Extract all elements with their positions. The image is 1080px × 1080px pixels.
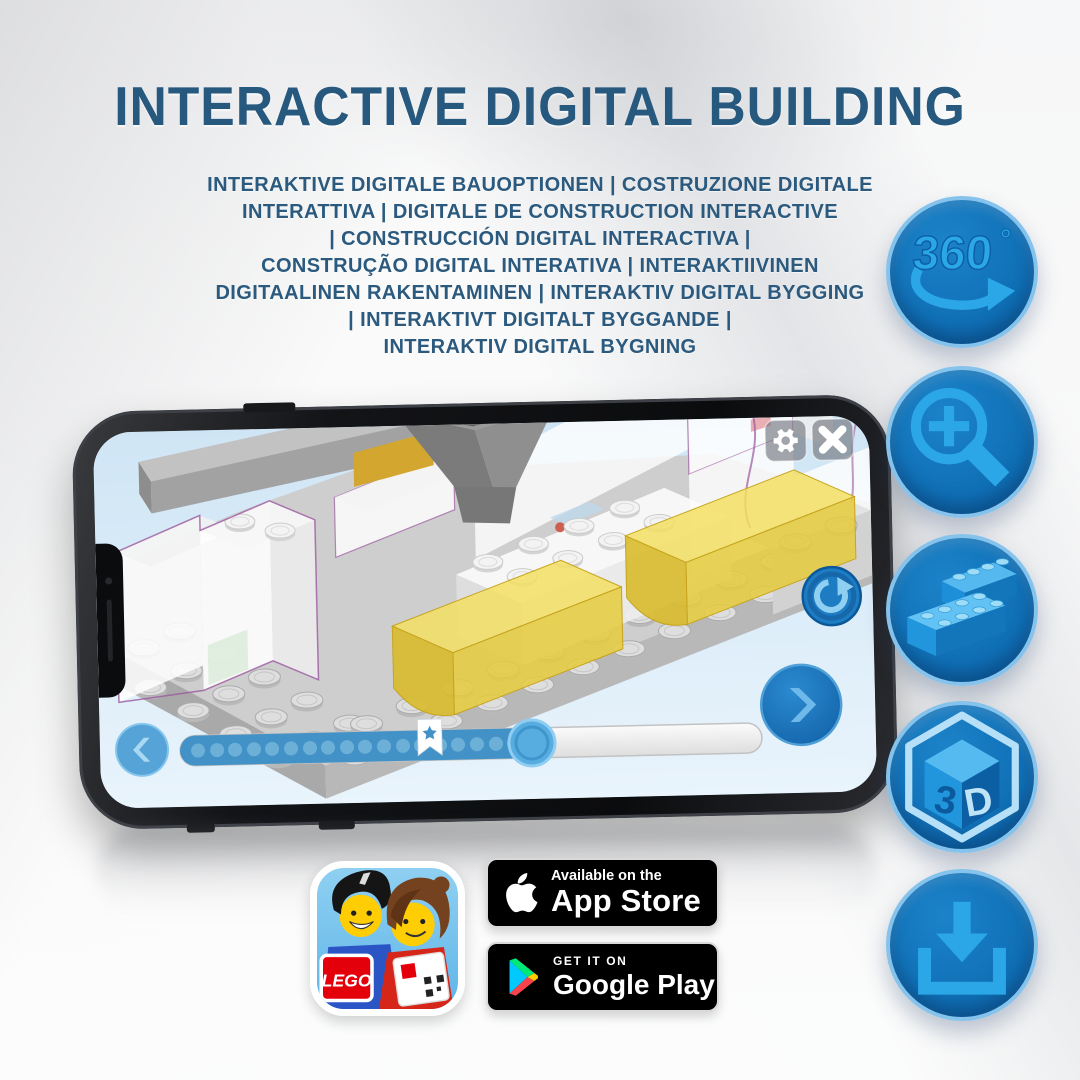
page-title: INTERACTIVE DIGITAL BUILDING (32, 74, 1047, 138)
lego-logo: LEGO (321, 955, 372, 1000)
next-step-button[interactable] (760, 664, 842, 746)
subtitle-line: INTERAKTIV DIGITAL BYGNING (160, 334, 920, 361)
subtitle-line: | CONSTRUCCIÓN DIGITAL INTERACTIVA | (160, 226, 920, 253)
degree-label: ° (998, 224, 1012, 256)
lego-logo-text: LEGO (322, 970, 372, 990)
multilingual-subtitle: INTERAKTIVE DIGITALE BAUOPTIONEN | COSTR… (160, 172, 920, 361)
feature-bricks (886, 534, 1038, 686)
download-icon (890, 873, 1034, 1017)
progress-handle[interactable] (508, 719, 555, 766)
lego-app-artwork: LEGO (317, 868, 458, 1009)
app-store-badge[interactable]: Available on the App Store (486, 858, 719, 928)
google-play-icon (504, 957, 540, 997)
subtitle-line: INTERATTIVA | DIGITALE DE CONSTRUCTION I… (160, 199, 920, 226)
feature-download (886, 869, 1038, 1021)
360-label: 360 (911, 227, 994, 280)
subtitle-line: | INTERAKTIVT DIGITALT BYGGANDE | (160, 307, 920, 334)
app-store-tagline: Available on the (551, 869, 701, 884)
rotate-button[interactable] (802, 566, 861, 625)
app-screen (93, 415, 877, 809)
phone-side-button (243, 402, 295, 412)
speaker-icon (107, 599, 113, 661)
subtitle-line: INTERAKTIVE DIGITALE BAUOPTIONEN | COSTR… (160, 172, 920, 199)
settings-button[interactable] (765, 420, 807, 462)
camera-icon (105, 577, 112, 584)
lego-3d-scene (93, 415, 877, 809)
instruction-card (393, 952, 450, 1007)
poster-canvas: INTERACTIVE DIGITAL BUILDING INTERAKTIVE… (0, 0, 1080, 1080)
google-play-badge[interactable]: GET IT ON Google Play (486, 942, 719, 1012)
zoom-in-icon (890, 370, 1034, 514)
feature-3d-view: 3 D (886, 701, 1038, 853)
feature-zoom (886, 366, 1038, 518)
apple-icon (504, 873, 538, 914)
subtitle-line: DIGITAALINEN RAKENTAMINEN | INTERAKTIV D… (160, 280, 920, 307)
subtitle-line: CONSTRUÇÃO DIGITAL INTERATIVA | INTERAKT… (160, 253, 920, 280)
google-play-title: Google Play (553, 970, 715, 999)
google-play-tagline: GET IT ON (553, 955, 715, 968)
phone-mockup (71, 394, 898, 830)
lego-bricks-icon (890, 538, 1034, 682)
phone-frame (71, 394, 898, 830)
phone-notch (95, 543, 125, 698)
360-rotation-icon: 360 ° (890, 200, 1034, 344)
3d-cube-icon: 3 D (890, 705, 1034, 849)
feature-360-rotation: 360 ° (886, 196, 1038, 348)
previous-step-button[interactable] (115, 723, 168, 776)
app-store-title: App Store (551, 885, 701, 918)
lego-app-icon[interactable]: LEGO (310, 861, 465, 1016)
close-button[interactable] (812, 419, 854, 461)
